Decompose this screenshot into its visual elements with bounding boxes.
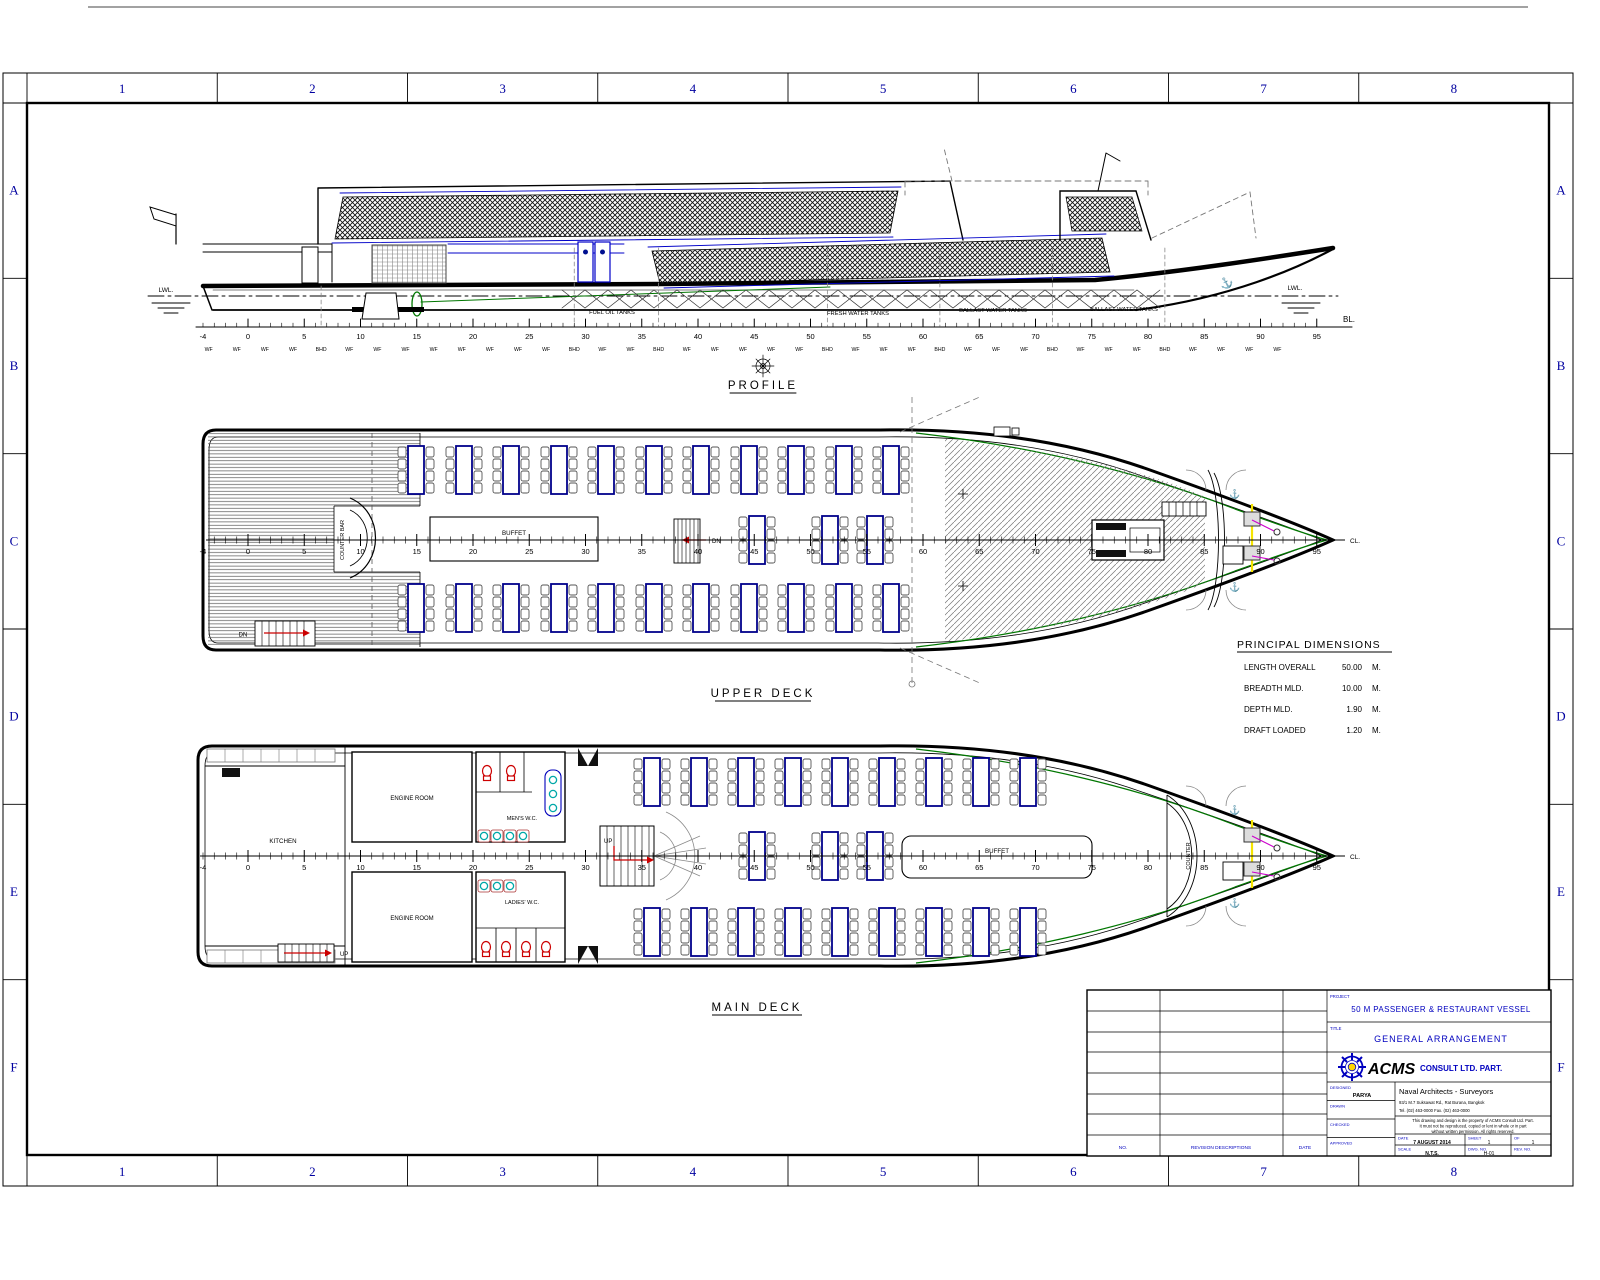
frame-type-label: WF <box>345 347 353 353</box>
grid-row-label: F <box>10 1059 17 1074</box>
frame-number: 5 <box>302 332 306 341</box>
frame-number: 20 <box>469 547 477 556</box>
company-name: CONSULT LTD. PART. <box>1420 1064 1502 1073</box>
grid-col-label: 1 <box>119 1164 126 1179</box>
ladies-wc-label: LADIES' W.C. <box>505 900 540 906</box>
checked-label: CHECKED <box>1330 1122 1350 1127</box>
rev-no-label: REV. NO. <box>1514 1147 1531 1152</box>
frame-number: 35 <box>638 863 646 872</box>
frame-number: -4 <box>200 547 207 556</box>
buffet-main-label: BUFFET <box>985 848 1009 855</box>
dim-unit: M. <box>1372 705 1381 714</box>
dim-name: DRAFT LOADED <box>1244 726 1306 735</box>
designed-value: PARYA <box>1353 1093 1371 1099</box>
frame-number: 95 <box>1313 863 1321 872</box>
project-label: PROJECT <box>1330 994 1350 999</box>
frame-number: 45 <box>750 332 758 341</box>
rev-date-header: DATE <box>1299 1145 1311 1151</box>
frame-number: 55 <box>863 863 871 872</box>
grid-row-label: A <box>1556 183 1566 198</box>
frame-type-label: WF <box>908 347 916 353</box>
frame-number: 70 <box>1031 332 1039 341</box>
profile-title: PROFILE <box>728 380 798 392</box>
mens-wc: MEN'S W.C. <box>476 752 565 842</box>
frame-number: 30 <box>581 332 589 341</box>
frame-number: 50 <box>806 863 814 872</box>
frame-number: 75 <box>1088 547 1096 556</box>
up-label-mid: UP <box>604 839 612 845</box>
frame-number: 60 <box>919 332 927 341</box>
frame-type-label: WF <box>1133 347 1141 353</box>
frame-number: 45 <box>750 863 758 872</box>
frame-type-label: WF <box>992 347 1000 353</box>
main-deck-title: MAIN DECK <box>712 1002 803 1014</box>
grid-row-label: A <box>9 183 19 198</box>
firm-line1: Naval Architects - Surveyors <box>1399 1087 1493 1096</box>
grid-col-label: 7 <box>1260 81 1267 96</box>
frame-number: 60 <box>919 547 927 556</box>
dim-value: 50.00 <box>1342 663 1363 672</box>
frame-number: 10 <box>356 547 364 556</box>
rev-desc-header: REVISION DESCRIPTIONS <box>1191 1145 1251 1151</box>
frame-type-label: WF <box>767 347 775 353</box>
grid-col-label: 2 <box>309 81 316 96</box>
date-label: DATE <box>1398 1136 1409 1141</box>
pilot-ladder <box>1162 502 1206 516</box>
frame-type-label: WF <box>514 347 522 353</box>
frame-type-label: BHD <box>653 347 664 353</box>
grid-row-label: E <box>1557 884 1565 899</box>
frame-type-label: WF <box>261 347 269 353</box>
buffet-main <box>902 836 1092 878</box>
dim-unit: M. <box>1372 726 1381 735</box>
grid-col-label: 6 <box>1070 1164 1077 1179</box>
scale-label: SCALE <box>1398 1147 1411 1152</box>
grid-row-label: C <box>10 533 19 548</box>
frame-number: 90 <box>1256 332 1264 341</box>
grid-row-label: C <box>1557 533 1566 548</box>
compass-icon <box>752 355 774 377</box>
frame-number: 90 <box>1256 547 1264 556</box>
frame-number: 40 <box>694 332 702 341</box>
frame-type-label: WF <box>851 347 859 353</box>
anchor-icon: ⚓ <box>1229 804 1240 815</box>
main-deck-view: KITCHEN UP ENGINE ROOM ENGINE ROOM <box>198 746 1360 1015</box>
frame-number: 5 <box>302 863 306 872</box>
grid-col-label: 5 <box>880 81 887 96</box>
frame-number: 55 <box>863 547 871 556</box>
grid-col-label: 8 <box>1451 1164 1458 1179</box>
frame-type-label: WF <box>289 347 297 353</box>
frame-number: 15 <box>413 863 421 872</box>
designed-label: DESIGNED <box>1330 1085 1351 1090</box>
frame-number: 25 <box>525 547 533 556</box>
frame-type-label: WF <box>964 347 972 353</box>
baseline-label: BL. <box>1343 315 1355 324</box>
firm-line3: Tel. (02) 463-0000 Fax. (02) 463-0000 <box>1399 1108 1470 1113</box>
sheet-value: 1 <box>1488 1140 1491 1146</box>
frame-type-label: WF <box>1273 347 1281 353</box>
dim-unit: M. <box>1372 684 1381 693</box>
frame-number: 35 <box>638 547 646 556</box>
frame-type-label: WF <box>1076 347 1084 353</box>
sheet-label: SHEET <box>1468 1136 1482 1141</box>
frame-number: 85 <box>1200 332 1208 341</box>
frame-number: 80 <box>1144 863 1152 872</box>
dim-unit: M. <box>1372 663 1381 672</box>
project-name: 50 M PASSENGER & RESTAURANT VESSEL <box>1351 1005 1531 1014</box>
grid-col-label: 4 <box>690 81 697 96</box>
frame-number: 20 <box>469 863 477 872</box>
drawing-sheet: 1122334455667788AABBCCDDEEFF <box>0 0 1600 1280</box>
frame-number: 80 <box>1144 332 1152 341</box>
frame-number: 75 <box>1088 332 1096 341</box>
frame-type-label: BHD <box>822 347 833 353</box>
frame-number: 95 <box>1313 332 1321 341</box>
frame-number: 0 <box>246 547 250 556</box>
frame-ruler-profile: -405101520253035404550556065707580859095… <box>200 319 1321 353</box>
frame-type-label: WF <box>205 347 213 353</box>
dwg-no-value: H-01 <box>1484 1151 1495 1157</box>
grid-col-label: 1 <box>119 81 126 96</box>
frame-number: -4 <box>200 332 207 341</box>
dim-name: LENGTH OVERALL <box>1244 663 1316 672</box>
tank-label: FUEL OIL TANKS <box>589 310 635 316</box>
principal-dimensions-title: PRINCIPAL DIMENSIONS <box>1237 639 1381 651</box>
upper-window-band <box>335 191 898 239</box>
grid-row-label: F <box>1557 1059 1564 1074</box>
anchor-icon: ⚓ <box>1229 897 1240 908</box>
anchor-icon: ⚓ <box>1229 581 1240 592</box>
frame-number: 45 <box>750 547 758 556</box>
frame-type-label: WF <box>1217 347 1225 353</box>
lwl-label-left: LWL. <box>159 287 174 294</box>
dim-name: DEPTH MLD. <box>1244 705 1292 714</box>
frame-type-label: WF <box>1189 347 1197 353</box>
frame-type-label: WF <box>458 347 466 353</box>
frame-type-label: WF <box>739 347 747 353</box>
title-block: NO. REVISION DESCRIPTIONS DATE PROJECT 5… <box>1087 990 1551 1157</box>
firm-line2: 93/1 M.7 Suksawat Rd., Rat Burana, Bangk… <box>1399 1100 1485 1105</box>
frame-number: 70 <box>1031 547 1039 556</box>
principal-dimensions: PRINCIPAL DIMENSIONS LENGTH OVERALL 50.0… <box>1237 639 1392 735</box>
frame-type-label: WF <box>880 347 888 353</box>
frame-number: 75 <box>1088 863 1096 872</box>
logo-text: ACMS <box>1367 1061 1415 1078</box>
tank-label: BALLAST WATER TANKS <box>1090 307 1158 313</box>
grid-col-label: 7 <box>1260 1164 1267 1179</box>
upper-deck-view: COUNTER BAR BUFFET DN DN <box>200 396 1361 701</box>
stern-flag <box>150 207 176 244</box>
upper-deck-title: UPPER DECK <box>711 688 816 700</box>
grid-col-label: 5 <box>880 1164 887 1179</box>
grid-row-label: D <box>1556 709 1565 724</box>
frame-type-label: WF <box>1105 347 1113 353</box>
frame-type-label: WF <box>233 347 241 353</box>
grid-col-label: 3 <box>499 1164 506 1179</box>
frame-type-label: WF <box>401 347 409 353</box>
tank-label: BALLAST WATER TANKS <box>959 308 1027 314</box>
frame-type-label: WF <box>1245 347 1253 353</box>
stem-curve <box>1136 249 1333 310</box>
entrance-door <box>578 242 610 282</box>
dim-value: 1.90 <box>1346 705 1362 714</box>
frame-number: 65 <box>975 332 983 341</box>
grid-col-label: 3 <box>499 81 506 96</box>
frame-type-label: BHD <box>1159 347 1170 353</box>
kitchen-label: KITCHEN <box>269 838 296 845</box>
drawing-title: GENERAL ARRANGEMENT <box>1374 1034 1508 1044</box>
frame-type-label: WF <box>1020 347 1028 353</box>
frame-number: 95 <box>1313 547 1321 556</box>
frame-number: 5 <box>302 547 306 556</box>
grid-col-label: 6 <box>1070 81 1077 96</box>
frame-type-label: WF <box>373 347 381 353</box>
grid-col-label: 8 <box>1451 81 1458 96</box>
note-line1: This drawing and design is the property … <box>1412 1118 1534 1123</box>
louver-panel <box>372 245 446 283</box>
frame-number: 0 <box>246 332 250 341</box>
grid-col-label: 2 <box>309 1164 316 1179</box>
dim-value: 1.20 <box>1346 726 1362 735</box>
frame-number: 40 <box>694 547 702 556</box>
frame-number: 65 <box>975 863 983 872</box>
frame-type-label: WF <box>486 347 494 353</box>
frame-type-label: BHD <box>316 347 327 353</box>
mast <box>1098 153 1120 191</box>
frame-type-label: WF <box>626 347 634 353</box>
frame-number: 80 <box>1144 547 1152 556</box>
engine-room-label: ENGINE ROOM <box>390 796 433 802</box>
frame-type-label: WF <box>430 347 438 353</box>
hull-truss <box>562 290 1160 308</box>
upper-cl-label: CL. <box>1350 538 1360 545</box>
frame-number: 30 <box>581 863 589 872</box>
frame-type-label: WF <box>795 347 803 353</box>
main-cl-label: CL. <box>1350 854 1360 861</box>
frame-number: 60 <box>919 863 927 872</box>
buffet-upper <box>430 517 598 561</box>
date-value: 7 AUGUST 2014 <box>1413 1140 1451 1146</box>
frame-number: 65 <box>975 547 983 556</box>
title-label: TITLE <box>1330 1026 1342 1031</box>
frame-type-label: WF <box>542 347 550 353</box>
scale-value: N.T.S. <box>1425 1151 1439 1157</box>
frame-type-label: WF <box>683 347 691 353</box>
general-arrangement-drawing: 1122334455667788AABBCCDDEEFF <box>0 0 1600 1280</box>
frame-number: -4 <box>200 863 207 872</box>
frame-number: 10 <box>356 332 364 341</box>
frame-type-label: BHD <box>569 347 580 353</box>
profile-view: ⚓ LWL. LWL. BL. FUEL OIL TANKS FRESH WAT… <box>148 148 1355 393</box>
frame-number: 70 <box>1031 863 1039 872</box>
frame-type-label: BHD <box>934 347 945 353</box>
grid-row-label: B <box>1557 358 1566 373</box>
of-value: 1 <box>1532 1140 1535 1146</box>
grid-row-label: E <box>10 884 18 899</box>
frame-number: 90 <box>1256 863 1264 872</box>
frame-number: 85 <box>1200 863 1208 872</box>
dim-name: BREADTH MLD. <box>1244 684 1304 693</box>
frame-number: 30 <box>581 547 589 556</box>
tank-label: FRESH WATER TANKS <box>827 311 889 317</box>
frame-number: 25 <box>525 863 533 872</box>
frame-number: 40 <box>694 863 702 872</box>
grid-col-label: 4 <box>690 1164 697 1179</box>
up-label-aft: UP <box>340 952 348 958</box>
frame-type-label: WF <box>711 347 719 353</box>
frame-number: 55 <box>863 332 871 341</box>
frame-number: 50 <box>806 547 814 556</box>
frame-number: 50 <box>806 332 814 341</box>
frame-number: 85 <box>1200 547 1208 556</box>
drawn-label: DRAWN <box>1330 1104 1345 1109</box>
engine-room-label: ENGINE ROOM <box>390 916 433 922</box>
ladies-wc: LADIES' W.C. <box>476 872 565 962</box>
dim-value: 10.00 <box>1342 684 1363 693</box>
frame-number: 15 <box>413 547 421 556</box>
buffet-upper-label: BUFFET <box>502 530 526 537</box>
frame-number: 0 <box>246 863 250 872</box>
grid-row-label: B <box>10 358 19 373</box>
frame-type-label: BHD <box>1047 347 1058 353</box>
rev-no-header: NO. <box>1119 1145 1128 1151</box>
frame-number: 35 <box>638 332 646 341</box>
approved-label: APPROVED <box>1330 1141 1352 1146</box>
dn-label-aft: DN <box>239 633 248 639</box>
frame-type-label: WF <box>598 347 606 353</box>
mens-wc-label: MEN'S W.C. <box>507 816 538 822</box>
frame-number: 10 <box>356 863 364 872</box>
frame-number: 15 <box>413 332 421 341</box>
lwl-label-right: LWL. <box>1288 285 1303 292</box>
frame-number: 25 <box>525 332 533 341</box>
note-line2: It must not be reproduced, copied or len… <box>1420 1124 1528 1129</box>
of-label: OF <box>1514 1136 1520 1141</box>
grid-row-label: D <box>9 709 18 724</box>
note-line3: without written permission. All rights r… <box>1431 1129 1514 1134</box>
frame-number: 20 <box>469 332 477 341</box>
anchor-icon: ⚓ <box>1229 488 1240 499</box>
